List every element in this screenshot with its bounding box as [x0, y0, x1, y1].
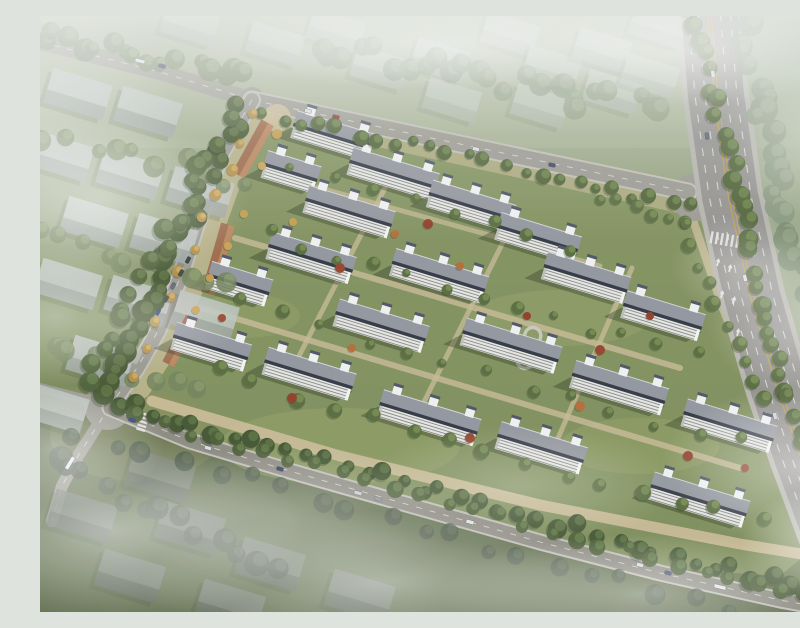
aerial-rendering-figure: [40, 16, 800, 612]
atmospheric-veil: [40, 16, 800, 612]
aerial-rendering-canvas: [40, 16, 800, 612]
